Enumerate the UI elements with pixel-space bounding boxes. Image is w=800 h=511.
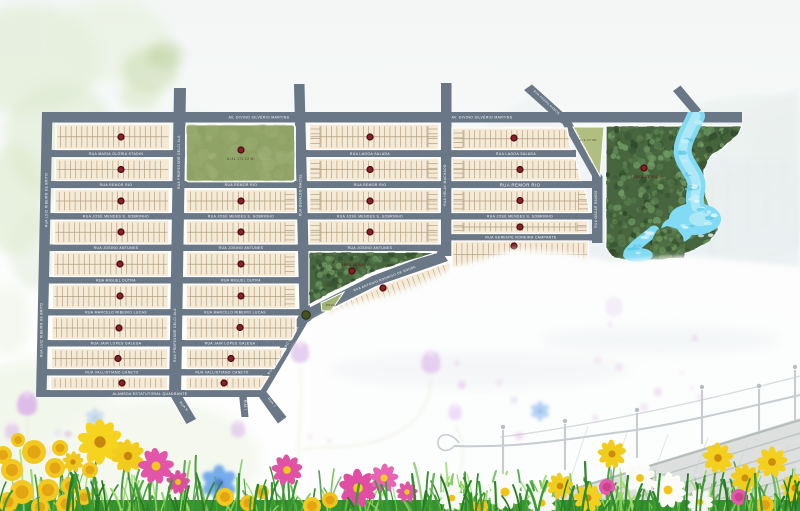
svg-text:RUA JOSINO ANTUNES: RUA JOSINO ANTUNES (348, 246, 393, 250)
svg-text:RUA VALLISTIANO CANETO: RUA VALLISTIANO CANETO (85, 371, 138, 375)
svg-text:RUA PROFESSOR DELCI ALA: RUA PROFESSOR DELCI ALA (177, 135, 181, 189)
svg-text:RUA LAGOA SALADA: RUA LAGOA SALADA (350, 152, 390, 156)
svg-text:RUA JOSÉ MENDES S. SOBRINHO: RUA JOSÉ MENDES S. SOBRINHO (208, 214, 274, 219)
svg-text:RUA REMOR RIO: RUA REMOR RIO (354, 183, 387, 187)
svg-text:RUA OSVALDO MACIEL: RUA OSVALDO MACIEL (299, 174, 303, 217)
svg-text:RUA REMOR RIO: RUA REMOR RIO (500, 183, 541, 188)
svg-text:RUA VALLISTIANO CANETO: RUA VALLISTIANO CANETO (195, 371, 248, 375)
svg-text:ÁREA VERDE II: ÁREA VERDE II (633, 175, 663, 179)
svg-text:RUA JOSÉ MENDES S. SOBRINHO: RUA JOSÉ MENDES S. SOBRINHO (337, 214, 403, 219)
svg-text:ÁREA VERDE III: ÁREA VERDE III (341, 263, 371, 267)
svg-text:RUA HELAY MACHADO: RUA HELAY MACHADO (443, 164, 447, 206)
svg-text:RUA MARIA GLÓRIA STADIN: RUA MARIA GLÓRIA STADIN (89, 151, 144, 156)
svg-text:RUA JOSÉ MENDES S. SOBRINHO: RUA JOSÉ MENDES S. SOBRINHO (487, 214, 553, 219)
svg-text:RUA LUIZ RIBEIRO DE BRITO: RUA LUIZ RIBEIRO DE BRITO (45, 173, 49, 227)
svg-text:RUA MARCELO RIBEIRO LUCAS: RUA MARCELO RIBEIRO LUCAS (204, 311, 266, 315)
svg-text:RUA LUIZ RIBEIRO DE BRITO: RUA LUIZ RIBEIRO DE BRITO (40, 303, 44, 357)
svg-text:RUA GERENTE RONEIRA CAMPANTE: RUA GERENTE RONEIRA CAMPANTE (485, 236, 557, 240)
svg-text:ALAMEDA ESTATUTORAL QUADRANTE: ALAMEDA ESTATUTORAL QUADRANTE (113, 392, 188, 396)
svg-text:RUA MIGUEL DUTRA: RUA MIGUEL DUTRA (96, 279, 136, 283)
svg-text:RUA OSCAR RAMOS: RUA OSCAR RAMOS (594, 190, 598, 227)
svg-text:AV. DIVINO SILVÉRIO MARTINS: AV. DIVINO SILVÉRIO MARTINS (452, 114, 513, 119)
svg-text:PRAÇA: PRAÇA (326, 303, 338, 307)
svg-text:RUA LAGOA SALADA: RUA LAGOA SALADA (496, 152, 536, 156)
svg-text:RUA MIGUEL DUTRA: RUA MIGUEL DUTRA (221, 279, 261, 283)
svg-text:RUA JOSINO ANTUNES: RUA JOSINO ANTUNES (94, 246, 139, 250)
svg-text:RUA JAIR LOPES GALEGA: RUA JAIR LOPES GALEGA (205, 342, 256, 346)
svg-text:RUA MARCELO RIBEIRO LUCAS: RUA MARCELO RIBEIRO LUCAS (85, 311, 147, 315)
svg-text:RUA REMOR RIO: RUA REMOR RIO (225, 183, 258, 187)
svg-text:RUA PROFESSOR DELCI ALA: RUA PROFESSOR DELCI ALA (173, 308, 177, 362)
svg-text:A=2.17 M²: A=2.17 M² (579, 138, 597, 142)
svg-text:RUA JOSINO ANTUNES: RUA JOSINO ANTUNES (219, 246, 264, 250)
svg-text:RUA JAIR LOPES GALEGA: RUA JAIR LOPES GALEGA (91, 342, 142, 346)
svg-text:RUA REMOR RIO: RUA REMOR RIO (100, 183, 133, 187)
svg-text:AV. DIVINO SILVÉRIO MARTINS: AV. DIVINO SILVÉRIO MARTINS (229, 114, 290, 119)
svg-text:A=41.171,12 M²: A=41.171,12 M² (227, 157, 255, 161)
svg-text:RUA I: RUA I (243, 400, 247, 410)
svg-text:RUA JOSÉ MENDES S. SOBRINHO: RUA JOSÉ MENDES S. SOBRINHO (83, 214, 149, 219)
